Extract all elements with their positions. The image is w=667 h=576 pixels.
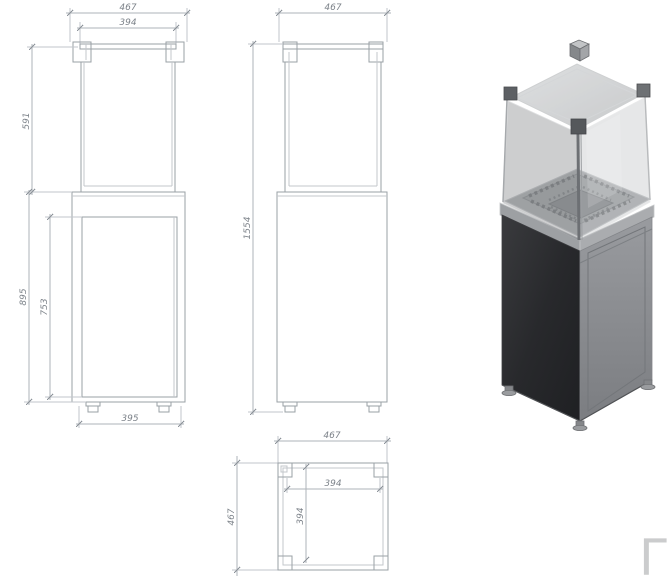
glass-corner-post-front — [578, 134, 579, 240]
dim-plan-overall-depth: 467 — [227, 508, 237, 525]
dim-side-total-height: 1554 — [243, 216, 253, 239]
corner-cap-left — [504, 87, 517, 100]
side-view: 467 1554 — [243, 3, 391, 415]
dim-plan-inner-depth: 394 — [296, 507, 306, 524]
corner-cap-back — [570, 40, 589, 61]
front-view: 467 394 395 — [19, 3, 190, 428]
dim-front-glass-height: 591 — [22, 112, 32, 129]
dim-front-glass-width: 394 — [119, 18, 136, 28]
dim-plan-inner-width: 394 — [324, 479, 341, 489]
plan-view: 467 467 394 394 — [227, 431, 391, 576]
dim-front-feet-spacing: 395 — [121, 414, 138, 424]
dim-front-door-height: 753 — [40, 298, 50, 315]
technical-drawing-canvas: 467 394 395 — [0, 0, 667, 576]
dim-plan-overall-width: 467 — [323, 431, 340, 441]
corner-cap-front — [571, 119, 586, 134]
corner-cap-right — [637, 84, 650, 97]
dim-front-overall-width: 467 — [119, 3, 136, 13]
render-3d — [500, 40, 655, 431]
watermark-letter: Γ — [639, 529, 667, 576]
dim-front-base-height: 895 — [19, 288, 29, 305]
dim-side-overall-width: 467 — [324, 3, 341, 13]
pedestal-face-light — [580, 217, 652, 421]
